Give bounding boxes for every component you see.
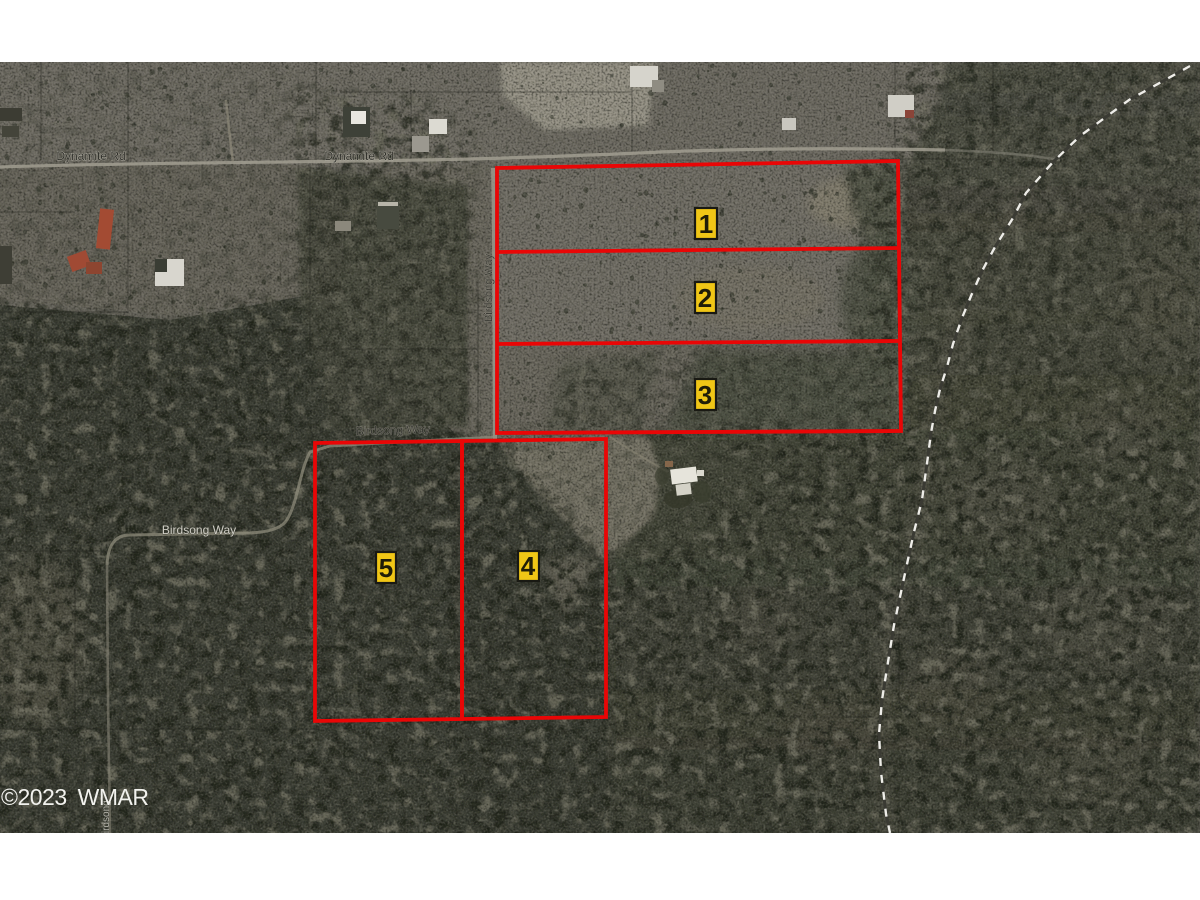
svg-text:3: 3 xyxy=(698,380,712,410)
svg-text:2: 2 xyxy=(698,283,712,313)
svg-text:Birdsong Way: Birdsong Way xyxy=(356,422,431,439)
svg-text:Dynamite Rd: Dynamite Rd xyxy=(56,149,125,163)
svg-text:1: 1 xyxy=(699,209,713,239)
svg-text:4: 4 xyxy=(521,551,536,581)
svg-text:©2023 WMAR: ©2023 WMAR xyxy=(1,784,148,810)
svg-text:Dynamite Rd: Dynamite Rd xyxy=(324,149,393,163)
svg-text:Birdsong Way: Birdsong Way xyxy=(483,253,495,322)
svg-text:Birdsong Way: Birdsong Way xyxy=(162,523,236,537)
svg-text:5: 5 xyxy=(379,553,393,583)
